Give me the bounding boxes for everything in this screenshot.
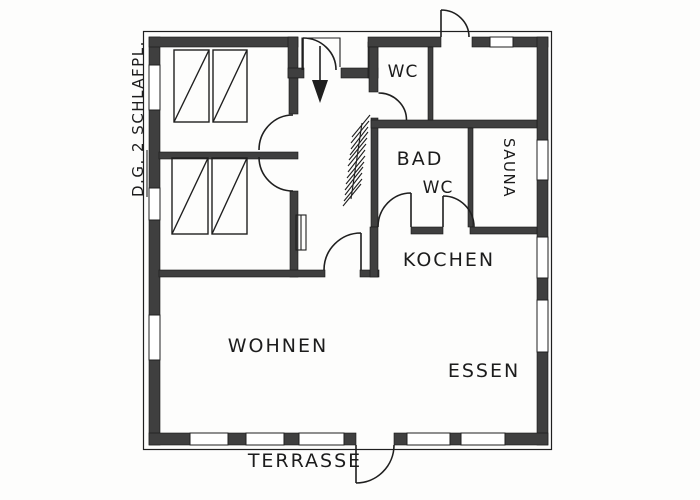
window <box>537 300 548 352</box>
window <box>461 433 505 445</box>
label-bath-wc: WC <box>423 178 454 198</box>
floor-title-text: D.G. 2 SCHLAFPL. <box>129 40 147 197</box>
window <box>537 237 548 278</box>
floor-title: D.G. 2 SCHLAFPL. <box>129 40 147 197</box>
window <box>490 37 513 47</box>
label-sauna: SAUNA <box>500 138 518 198</box>
window <box>537 140 548 180</box>
label-living: WOHNEN <box>228 335 328 357</box>
window <box>190 433 228 445</box>
label-kitchen: KOCHEN <box>403 249 495 271</box>
window <box>246 433 284 445</box>
window <box>149 188 160 220</box>
label-terrace: TERRASSE <box>247 450 362 472</box>
label-bath: BAD <box>397 148 444 170</box>
window <box>299 433 344 445</box>
label-dining: ESSEN <box>448 360 520 382</box>
label-wc-top: WC <box>388 62 419 82</box>
window <box>407 433 450 445</box>
floorplan-page: WC BAD WC SAUNA KOCHEN WOHNEN ESSEN TERR… <box>0 0 700 500</box>
window <box>149 315 160 360</box>
window <box>149 65 160 110</box>
floorplan-canvas: WC BAD WC SAUNA KOCHEN WOHNEN ESSEN TERR… <box>0 0 700 500</box>
